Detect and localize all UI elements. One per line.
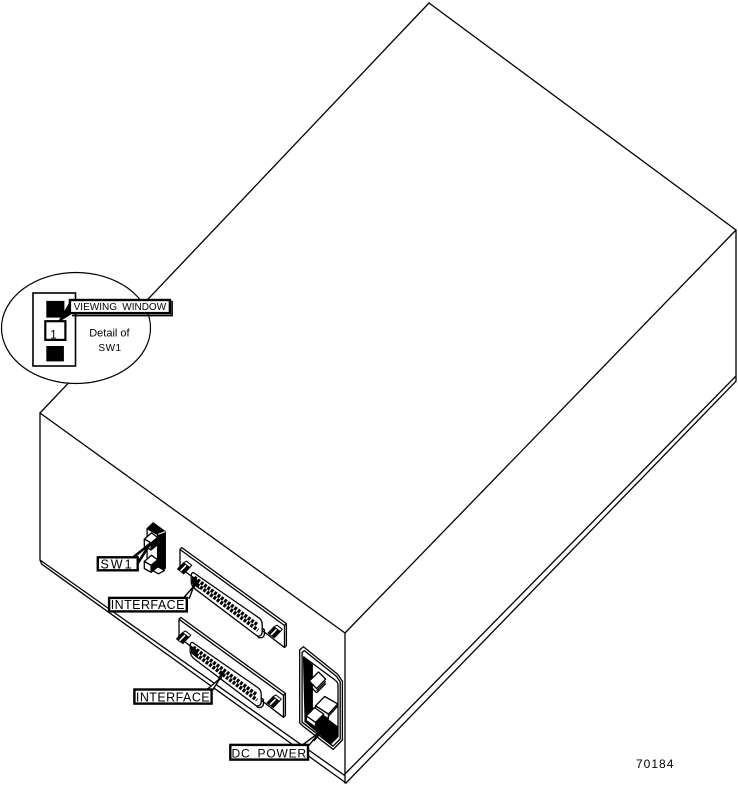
svg-text:INTERFACE: INTERFACE: [111, 598, 185, 612]
svg-text:1: 1: [50, 328, 57, 342]
svg-text:70184: 70184: [636, 757, 674, 771]
svg-text:SW1: SW1: [100, 557, 133, 571]
svg-text:VIEWING WINDOW: VIEWING WINDOW: [74, 302, 167, 313]
svg-text:SW1: SW1: [98, 343, 121, 354]
svg-text:INTERFACE: INTERFACE: [136, 690, 210, 704]
svg-text:DC POWER: DC POWER: [231, 746, 306, 760]
svg-text:Detail of: Detail of: [89, 328, 130, 340]
